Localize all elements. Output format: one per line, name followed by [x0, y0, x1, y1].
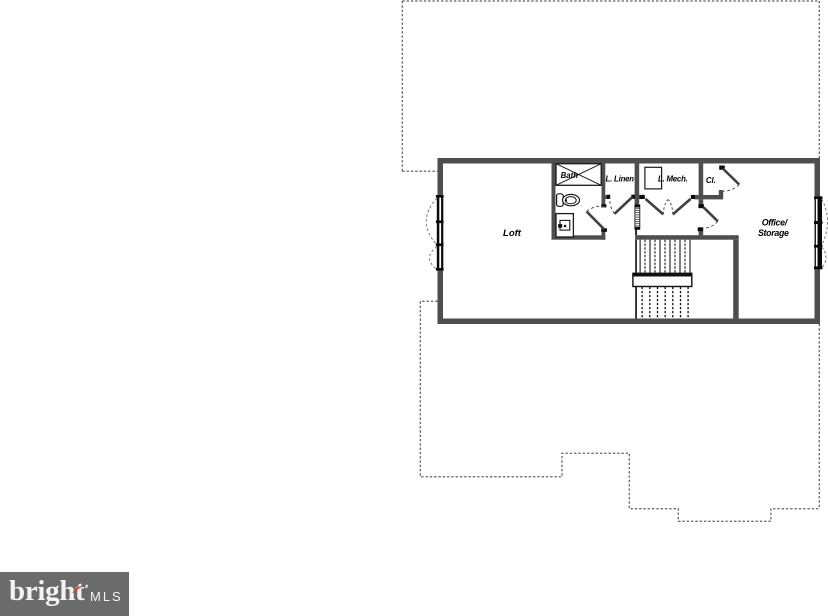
svg-text:Cl.: Cl. [706, 176, 716, 185]
svg-text:L. Linen: L. Linen [606, 174, 635, 183]
svg-text:Storage: Storage [758, 228, 789, 238]
svg-text:Office/: Office/ [762, 218, 789, 228]
svg-text:Loft: Loft [503, 228, 522, 239]
svg-text:L. Mech.: L. Mech. [658, 174, 688, 183]
svg-text:Bath: Bath [561, 171, 579, 180]
